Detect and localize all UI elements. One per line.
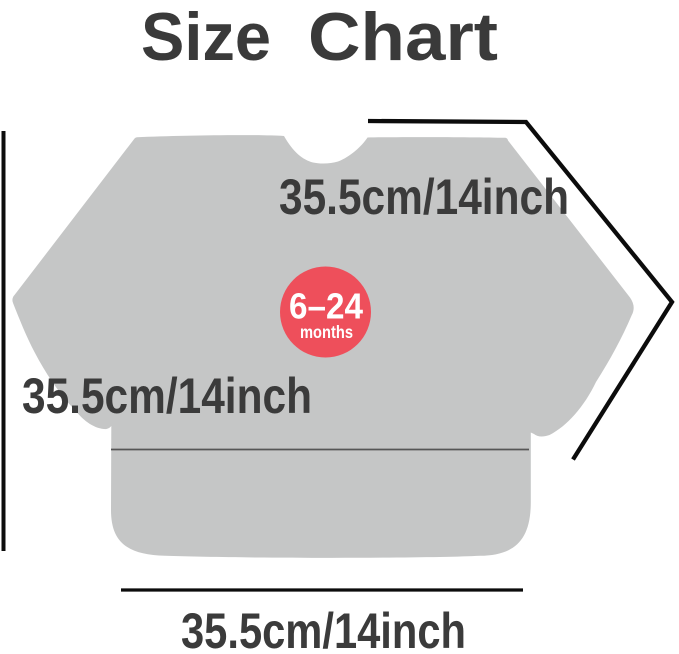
svg-text:35.5cm/14inch: 35.5cm/14inch xyxy=(279,169,569,225)
svg-text:Chart: Chart xyxy=(308,0,498,75)
svg-text:35.5cm/14inch: 35.5cm/14inch xyxy=(181,603,466,654)
svg-text:6–24: 6–24 xyxy=(289,286,363,327)
svg-text:Size: Size xyxy=(141,0,271,75)
svg-text:35.5cm/14inch: 35.5cm/14inch xyxy=(22,368,312,424)
svg-text:months: months xyxy=(300,322,353,342)
